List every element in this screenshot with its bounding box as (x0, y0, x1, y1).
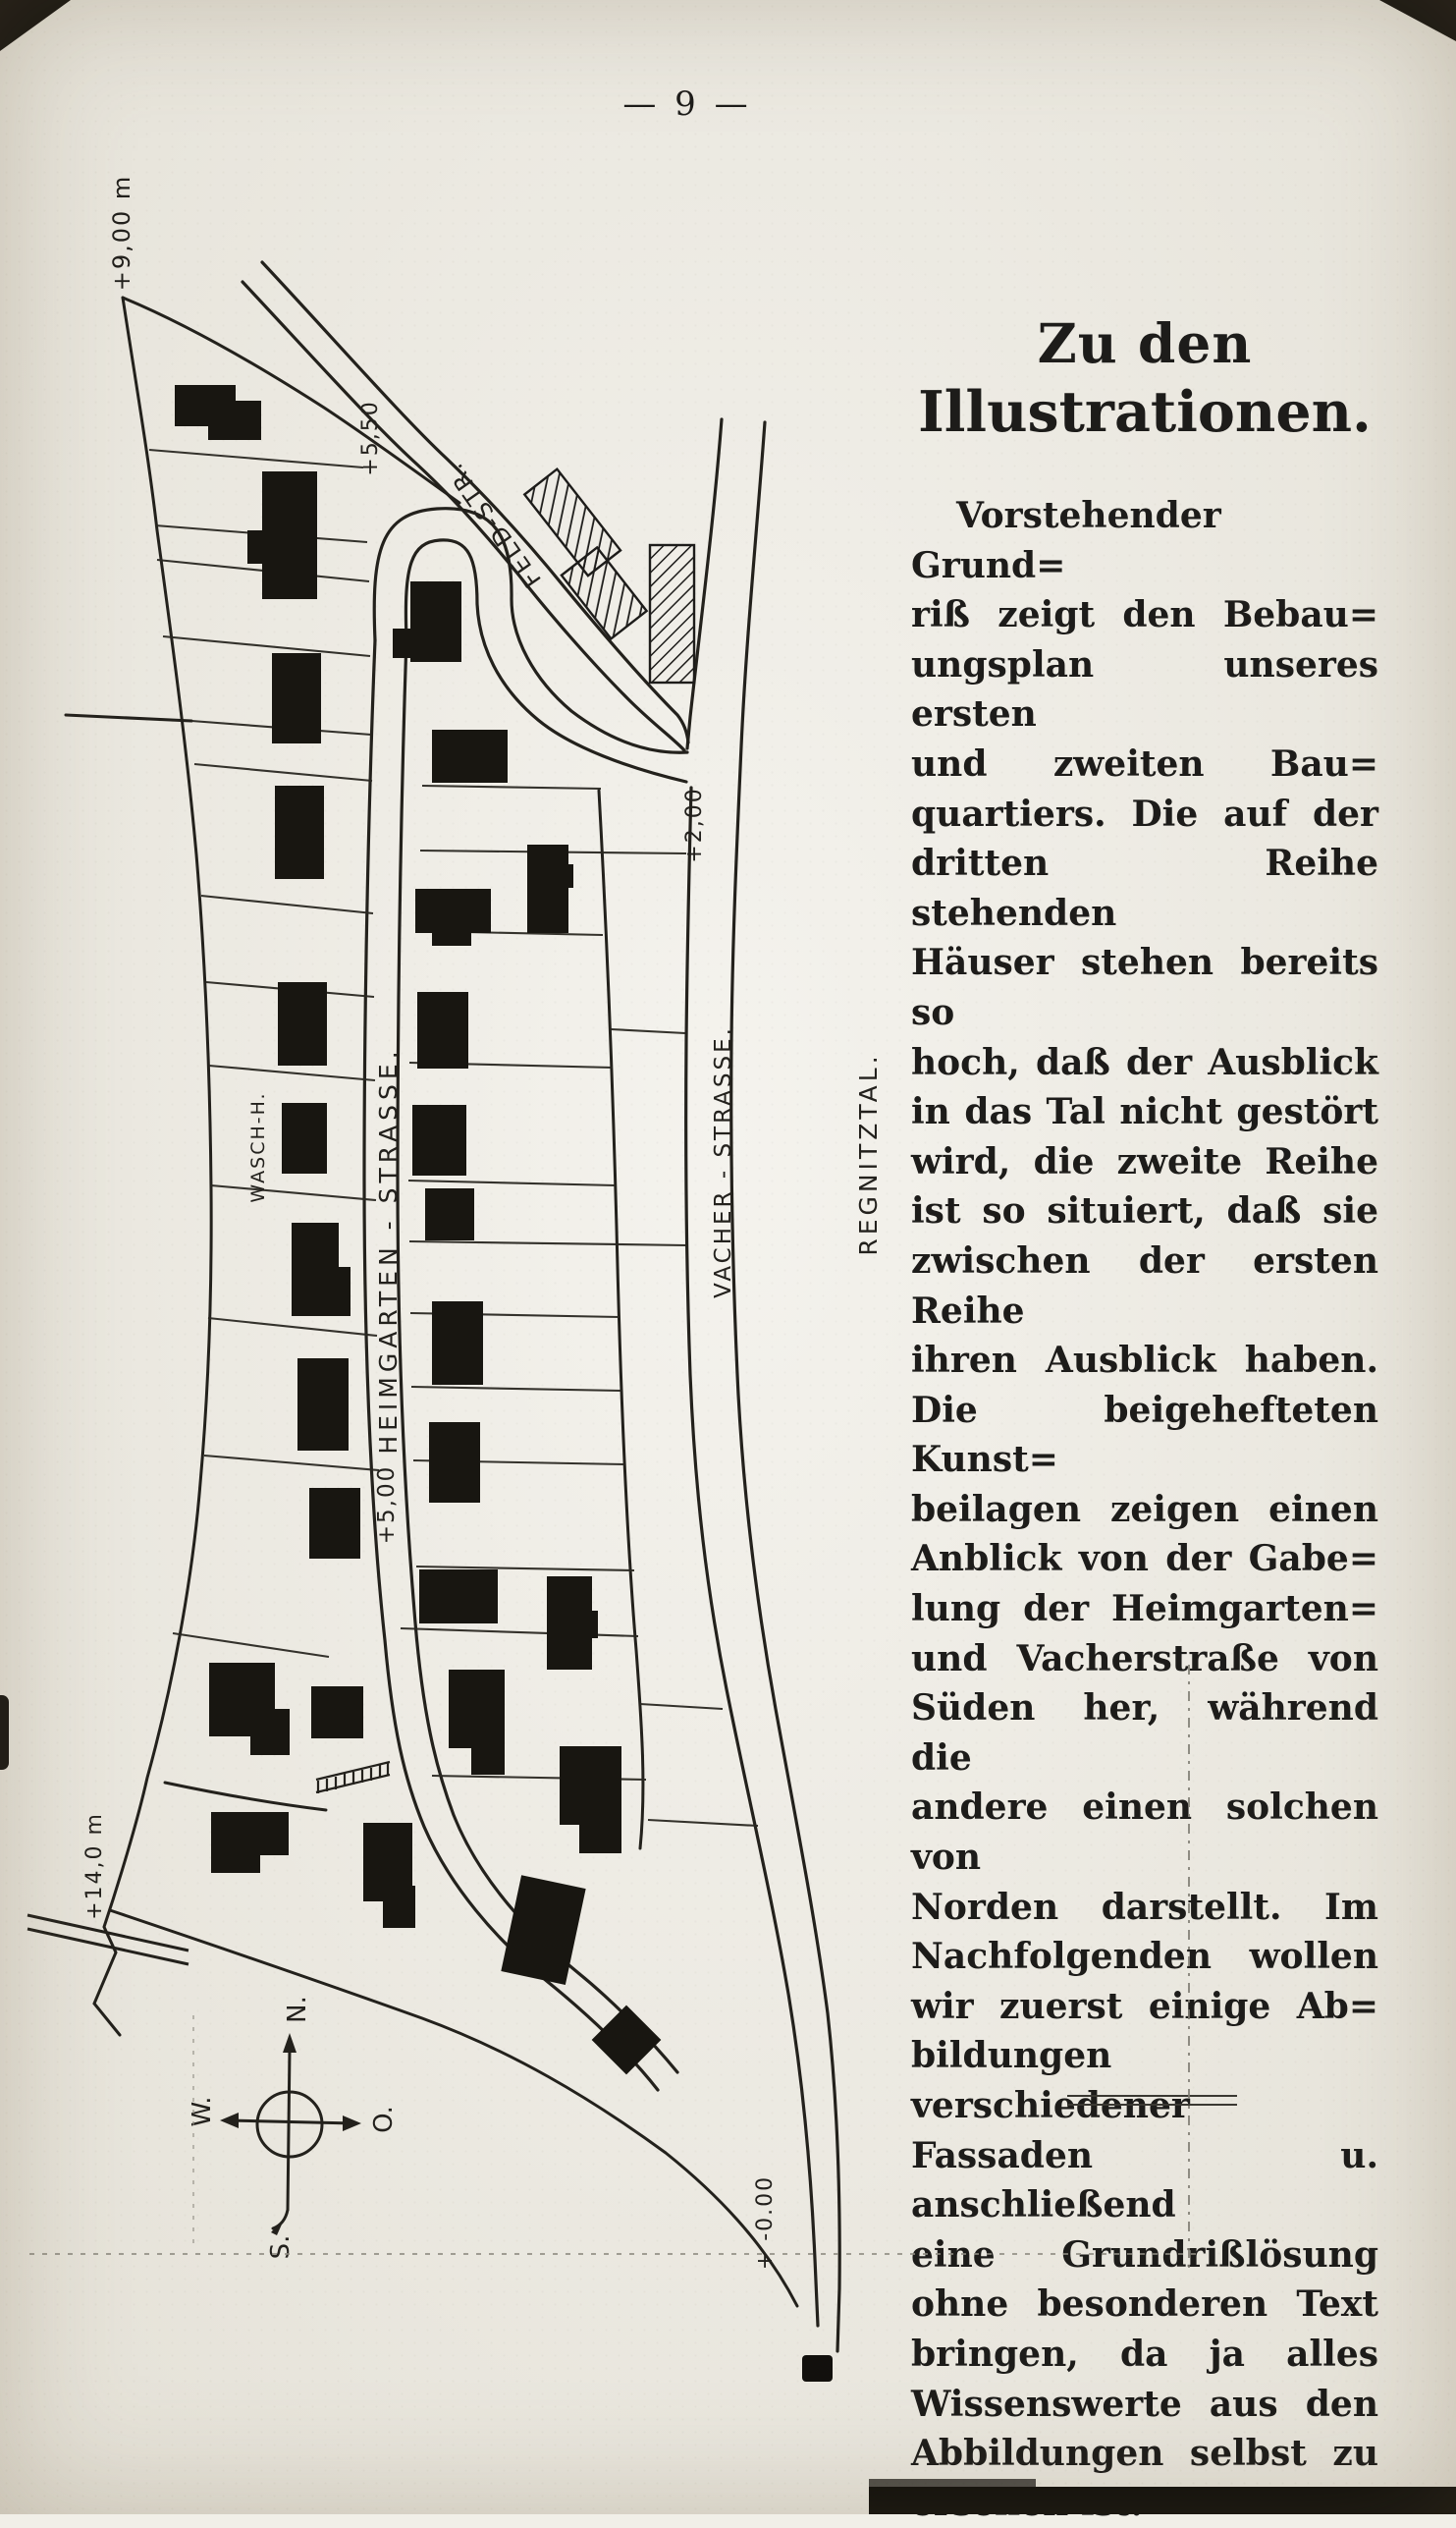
text-line: Norden darstellt. Im (911, 1883, 1378, 1933)
compass-north-label: N. (284, 1985, 311, 2034)
scan-artifact-left-edge (0, 1695, 9, 1770)
regnitztal-label: REGNITZTAL. (853, 1046, 883, 1262)
elevation-bottom-left: +14,0 m (81, 1797, 108, 1935)
text-line: und Vacherstraße von (911, 1634, 1378, 1684)
text-line: Abbildungen selbst zu (911, 2429, 1378, 2479)
text-line: und zweiten Bau= (911, 740, 1378, 790)
text-line: in das Tal nicht gestört (911, 1087, 1378, 1137)
scan-artifact-bottom-bar (869, 2487, 1456, 2514)
text-line: wir zuerst einige Ab= (911, 1982, 1378, 2032)
section-end-rule (1067, 2095, 1237, 2106)
text-line: lung der Heimgarten= (911, 1584, 1378, 1634)
text-line: ohne besonderen Text (911, 2280, 1378, 2330)
road-end-marker (802, 2355, 833, 2382)
compass-south-label: S. (267, 2223, 295, 2272)
text-line: riß zeigt den Bebau= (911, 590, 1378, 640)
text-line: Häuser stehen bereits so (911, 938, 1378, 1037)
text-line: andere einen solchen von (911, 1783, 1378, 1882)
vacher-strasse-label: VACHER - STRASSE. (709, 1034, 738, 1290)
text-line: Anblick von der Gabe= (911, 1534, 1378, 1584)
text-line: dritten Reihe stehenden (911, 839, 1378, 938)
wasch-house-label: WASCH-H. (245, 1078, 271, 1216)
elevation-top-left: +9,00 m (107, 159, 136, 306)
article-body: Vorstehender Grund=riß zeigt den Bebau=u… (911, 491, 1378, 2528)
compass-east-label: O. (370, 2095, 398, 2144)
page-crease-line (1188, 1665, 1190, 2272)
heimgarten-strasse-label: HEIMGARTEN - STRASSE. (373, 1044, 403, 1456)
railway-track (27, 1915, 189, 1964)
heimgarten-elevation-label: +5,00 (372, 1446, 402, 1564)
text-line: Vorstehender Grund= (911, 491, 1378, 590)
elevation-feld-top: +5,50 (356, 384, 384, 492)
text-line: Nachfolgenden wollen (911, 1932, 1378, 1982)
heimgarten-strasse-road (364, 509, 687, 2090)
elevation-vacher-top: +2,00 (680, 771, 708, 879)
fold-dotted-line (29, 2253, 1200, 2255)
text-line: ist so situiert, daß sie (911, 1186, 1378, 1237)
text-line: Die beigehefteten Kunst= (911, 1386, 1378, 1485)
article-column: Zu den Illustrationen. Vorstehender Grun… (911, 312, 1378, 2528)
buildings-solid (175, 385, 661, 2074)
text-line: eine Grundrißlösung (911, 2230, 1378, 2281)
text-line: ihren Ausblick haben. (911, 1336, 1378, 1386)
text-line: Süden her, während die (911, 1683, 1378, 1783)
vacher-strasse-road (686, 419, 840, 2351)
article-title-line1: Zu den (911, 312, 1378, 375)
map-dotted-line (192, 2015, 194, 2243)
compass-rose (220, 2033, 361, 2235)
stairs (316, 1762, 390, 1793)
text-line: wird, die zweite Reihe (911, 1137, 1378, 1187)
article-title: Zu den Illustrationen. (911, 312, 1378, 450)
text-line: Fassaden u. anschließend (911, 2131, 1378, 2230)
text-line: ungsplan unseres ersten (911, 640, 1378, 740)
text-line: zwischen der ersten Reihe (911, 1237, 1378, 1336)
text-line: hoch, daß der Ausblick (911, 1038, 1378, 1088)
text-line: beilagen zeigen einen (911, 1485, 1378, 1535)
text-line: bringen, da ja alles (911, 2330, 1378, 2380)
scan-artifact-corner-top-right (1379, 0, 1456, 41)
text-line: quartiers. Die auf der (911, 790, 1378, 840)
scan-artifact-corner-top-left (0, 0, 71, 51)
text-line: bildungen verschiedener (911, 2031, 1378, 2130)
elevation-vacher-bottom: + -0.00 (751, 2159, 779, 2286)
text-line: Wissenswerte aus den (911, 2380, 1378, 2430)
article-title-line2: Illustrationen. (911, 375, 1378, 450)
